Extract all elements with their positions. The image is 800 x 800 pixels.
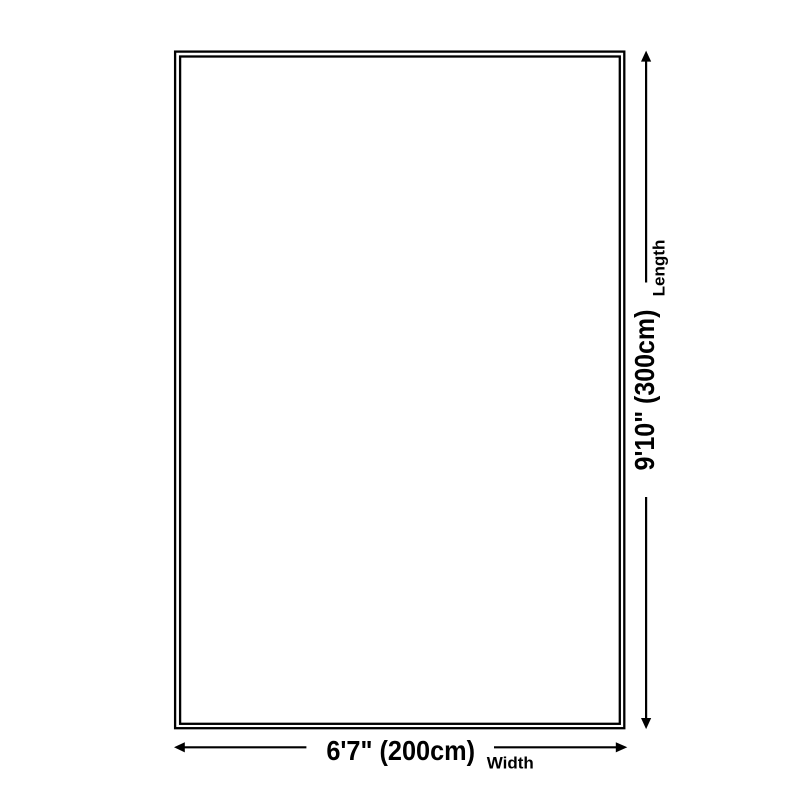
svg-text:Length: Length (650, 240, 669, 297)
svg-text:6'7" (200cm): 6'7" (200cm) (326, 735, 475, 766)
svg-text:9'10" (300cm): 9'10" (300cm) (629, 310, 660, 471)
svg-text:Width: Width (487, 754, 534, 773)
